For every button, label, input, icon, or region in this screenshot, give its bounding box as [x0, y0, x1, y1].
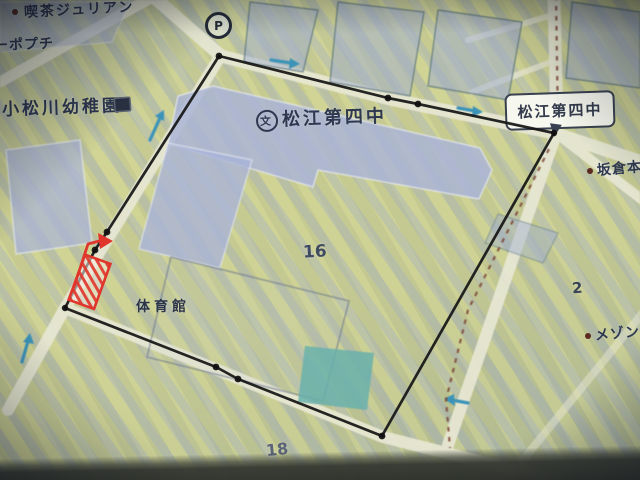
- survey-vertex-dot: [415, 101, 422, 108]
- survey-vertex-dot: [104, 229, 111, 236]
- survey-vertex-dot: [213, 364, 220, 371]
- survey-boundary-polygon: [65, 56, 554, 436]
- survey-vertex-dot: [62, 305, 68, 311]
- survey-vertex-dot: [379, 433, 386, 440]
- survey-vertex-dots: [62, 53, 557, 440]
- survey-vertex-dot: [92, 247, 99, 254]
- map-photo: 喫茶ジュリアン ーポプチ 小松川幼稚園 P 文 松江第四中 16 体育館 18 …: [0, 0, 640, 480]
- survey-vertex-dot: [385, 95, 392, 102]
- survey-vertex-dot: [235, 376, 242, 383]
- annotation-layer: [0, 0, 640, 480]
- survey-vertex-dot: [216, 53, 223, 60]
- survey-vertex-dot: [551, 130, 557, 136]
